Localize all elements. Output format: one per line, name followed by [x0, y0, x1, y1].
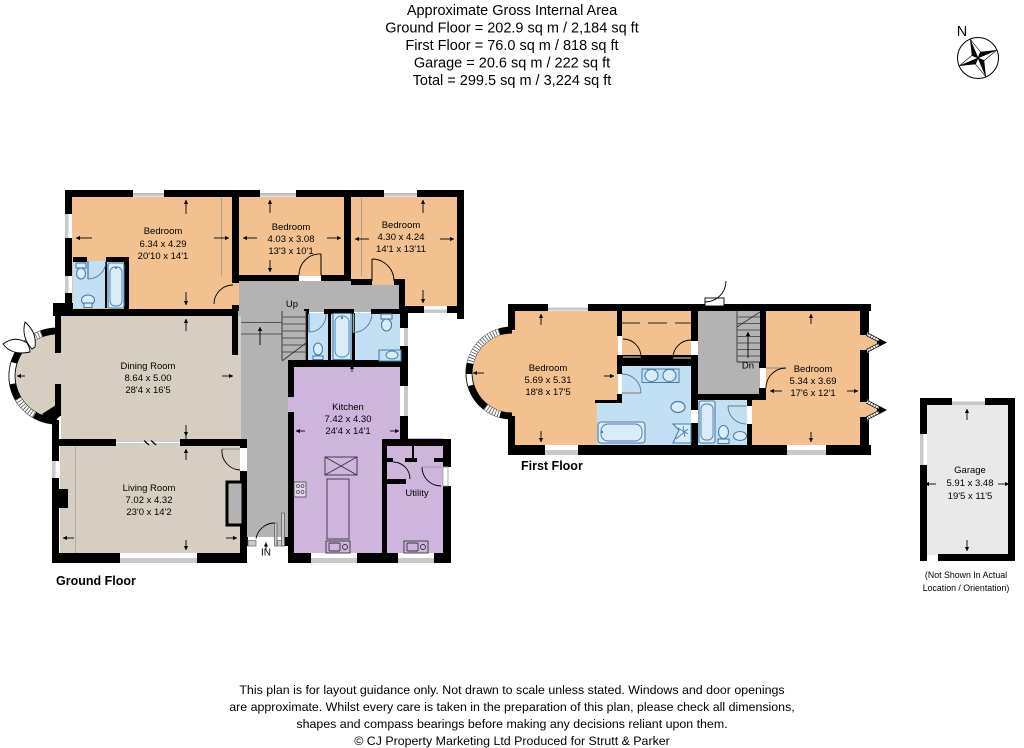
svg-text:shapes and compass bearings be: shapes and compass bearings before makin…: [296, 717, 727, 731]
svg-text:18'8 x 17'5: 18'8 x 17'5: [525, 387, 570, 398]
svg-text:Bedroom: Bedroom: [794, 364, 833, 375]
svg-text:19'5 x 11'5: 19'5 x 11'5: [948, 491, 993, 502]
svg-text:5.69 x 5.31: 5.69 x 5.31: [524, 375, 571, 386]
svg-text:This plan is for layout guidan: This plan is for layout guidance only. N…: [239, 683, 784, 697]
svg-text:(Not Shown In Actual: (Not Shown In Actual: [925, 570, 1007, 580]
svg-text:5.34 x 3.69: 5.34 x 3.69: [789, 376, 836, 387]
svg-text:13'3 x 10'1: 13'3 x 10'1: [268, 246, 313, 257]
svg-text:6.34 x 4.29: 6.34 x 4.29: [139, 239, 186, 250]
svg-text:Location / Orientation): Location / Orientation): [923, 583, 1010, 593]
svg-text:Bedroom: Bedroom: [272, 222, 311, 233]
svg-text:Dn: Dn: [742, 361, 754, 372]
svg-text:28'4 x 16'5: 28'4 x 16'5: [125, 385, 170, 396]
svg-text:5.91 x 3.48: 5.91 x 3.48: [946, 478, 993, 489]
svg-text:7.02 x 4.32: 7.02 x 4.32: [125, 495, 172, 506]
svg-text:Bedroom: Bedroom: [144, 226, 183, 237]
svg-text:4.30 x 4.24: 4.30 x 4.24: [377, 232, 424, 243]
svg-text:4.03 x 3.08: 4.03 x 3.08: [267, 234, 314, 245]
svg-text:N: N: [957, 24, 967, 40]
svg-text:Dining Room: Dining Room: [121, 361, 176, 372]
svg-text:Up: Up: [286, 299, 298, 310]
svg-text:7.42 x 4.30: 7.42 x 4.30: [324, 414, 371, 425]
svg-text:First Floor = 76.0 sq m / 818: First Floor = 76.0 sq m / 818 sq ft: [405, 38, 618, 54]
svg-text:Kitchen: Kitchen: [332, 402, 364, 413]
svg-text:20'10 x 14'1: 20'10 x 14'1: [138, 251, 189, 262]
svg-text:Garage: Garage: [954, 465, 986, 476]
svg-text:23'0 x 14'2: 23'0 x 14'2: [126, 507, 171, 518]
svg-text:Approximate Gross Internal Are: Approximate Gross Internal Area: [407, 3, 618, 19]
svg-text:First Floor: First Floor: [521, 459, 583, 473]
svg-text:© CJ Property Marketing Ltd Pr: © CJ Property Marketing Ltd Produced for…: [354, 734, 670, 748]
svg-text:Ground Floor = 202.9 sq m / 2,: Ground Floor = 202.9 sq m / 2,184 sq ft: [385, 21, 639, 37]
svg-text:24'4 x 14'1: 24'4 x 14'1: [325, 426, 370, 437]
svg-text:Bedroom: Bedroom: [382, 220, 421, 231]
svg-text:Ground Floor: Ground Floor: [56, 574, 136, 588]
svg-text:IN: IN: [261, 548, 271, 559]
svg-text:Utility: Utility: [405, 488, 428, 499]
svg-text:Total = 299.5 sq m / 3,224 sq: Total = 299.5 sq m / 3,224 sq ft: [413, 73, 612, 89]
svg-text:17'6 x 12'1: 17'6 x 12'1: [790, 388, 835, 399]
svg-text:8.64 x 5.00: 8.64 x 5.00: [124, 373, 171, 384]
svg-text:Living Room: Living Room: [123, 483, 176, 494]
svg-text:Bedroom: Bedroom: [529, 363, 568, 374]
svg-text:14'1 x 13'11: 14'1 x 13'11: [376, 244, 426, 255]
svg-text:Garage = 20.6 sq m / 222 sq ft: Garage = 20.6 sq m / 222 sq ft: [414, 56, 610, 72]
svg-text:are approximate. Whilst every: are approximate. Whilst every care is ta…: [229, 700, 794, 714]
